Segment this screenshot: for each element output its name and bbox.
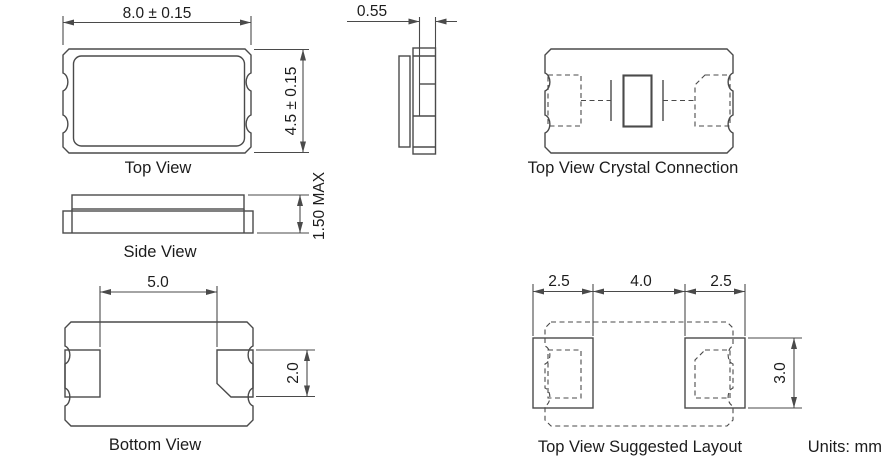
top-view: 8.0 ± 0.15 4.5 ± 0.15 Top View	[63, 5, 309, 177]
bottom-view-label: Bottom View	[109, 436, 201, 454]
layout-rightpad-dim-text: 2.5	[710, 273, 732, 290]
side-view: 1.50 MAX Side View	[63, 171, 328, 261]
crystal-connection-package-outline	[545, 49, 733, 153]
layout-right-chip-pad-dashed	[695, 350, 730, 398]
top-view-package-outline	[63, 49, 251, 153]
bottom-view: 5.0 2.0 Bottom View	[65, 274, 315, 454]
units-note: Units: mm	[808, 438, 882, 456]
top-view-inner-body	[74, 56, 245, 146]
crystal-connection-label: Top View Crystal Connection	[528, 159, 739, 177]
crystal-package-drawing: 8.0 ± 0.15 4.5 ± 0.15 Top View 0.55 Top …	[0, 0, 888, 461]
crystal-connection-view: Top View Crystal Connection	[528, 49, 739, 177]
end-view: 0.55	[347, 3, 457, 154]
side-view-height-dim-text: 1.50 MAX	[311, 171, 328, 240]
side-view-base	[63, 211, 253, 233]
crystal-connection-right-pad	[695, 75, 730, 126]
layout-gap-dim-text: 4.0	[630, 273, 652, 290]
crystal-symbol-body	[624, 76, 652, 127]
suggested-layout-label: Top View Suggested Layout	[538, 438, 743, 456]
layout-left-chip-pad-dashed	[548, 350, 581, 398]
bottom-view-padheight-dim-text: 2.0	[285, 362, 302, 384]
end-view-body	[413, 48, 436, 154]
end-view-lid-dim-text: 0.55	[357, 3, 387, 20]
side-view-label: Side View	[123, 243, 196, 261]
bottom-view-package-outline	[65, 322, 253, 426]
layout-leftpad-dim-text: 2.5	[548, 273, 570, 290]
technical-drawing-canvas: 8.0 ± 0.15 4.5 ± 0.15 Top View 0.55 Top …	[0, 0, 888, 461]
top-view-height-dim-text: 4.5 ± 0.15	[283, 67, 300, 136]
top-view-label: Top View	[125, 159, 192, 177]
bottom-view-span-dim-text: 5.0	[147, 274, 169, 291]
top-view-width-dim-text: 8.0 ± 0.15	[123, 5, 192, 22]
layout-padheight-dim-text: 3.0	[772, 362, 789, 384]
layout-left-land-pad	[533, 338, 593, 408]
side-view-lid	[72, 195, 244, 209]
end-view-base	[399, 56, 410, 147]
suggested-layout-view: 2.5 4.0 2.5 3.0 Top View Suggested Layou…	[533, 273, 802, 456]
crystal-connection-left-pad	[548, 75, 581, 126]
